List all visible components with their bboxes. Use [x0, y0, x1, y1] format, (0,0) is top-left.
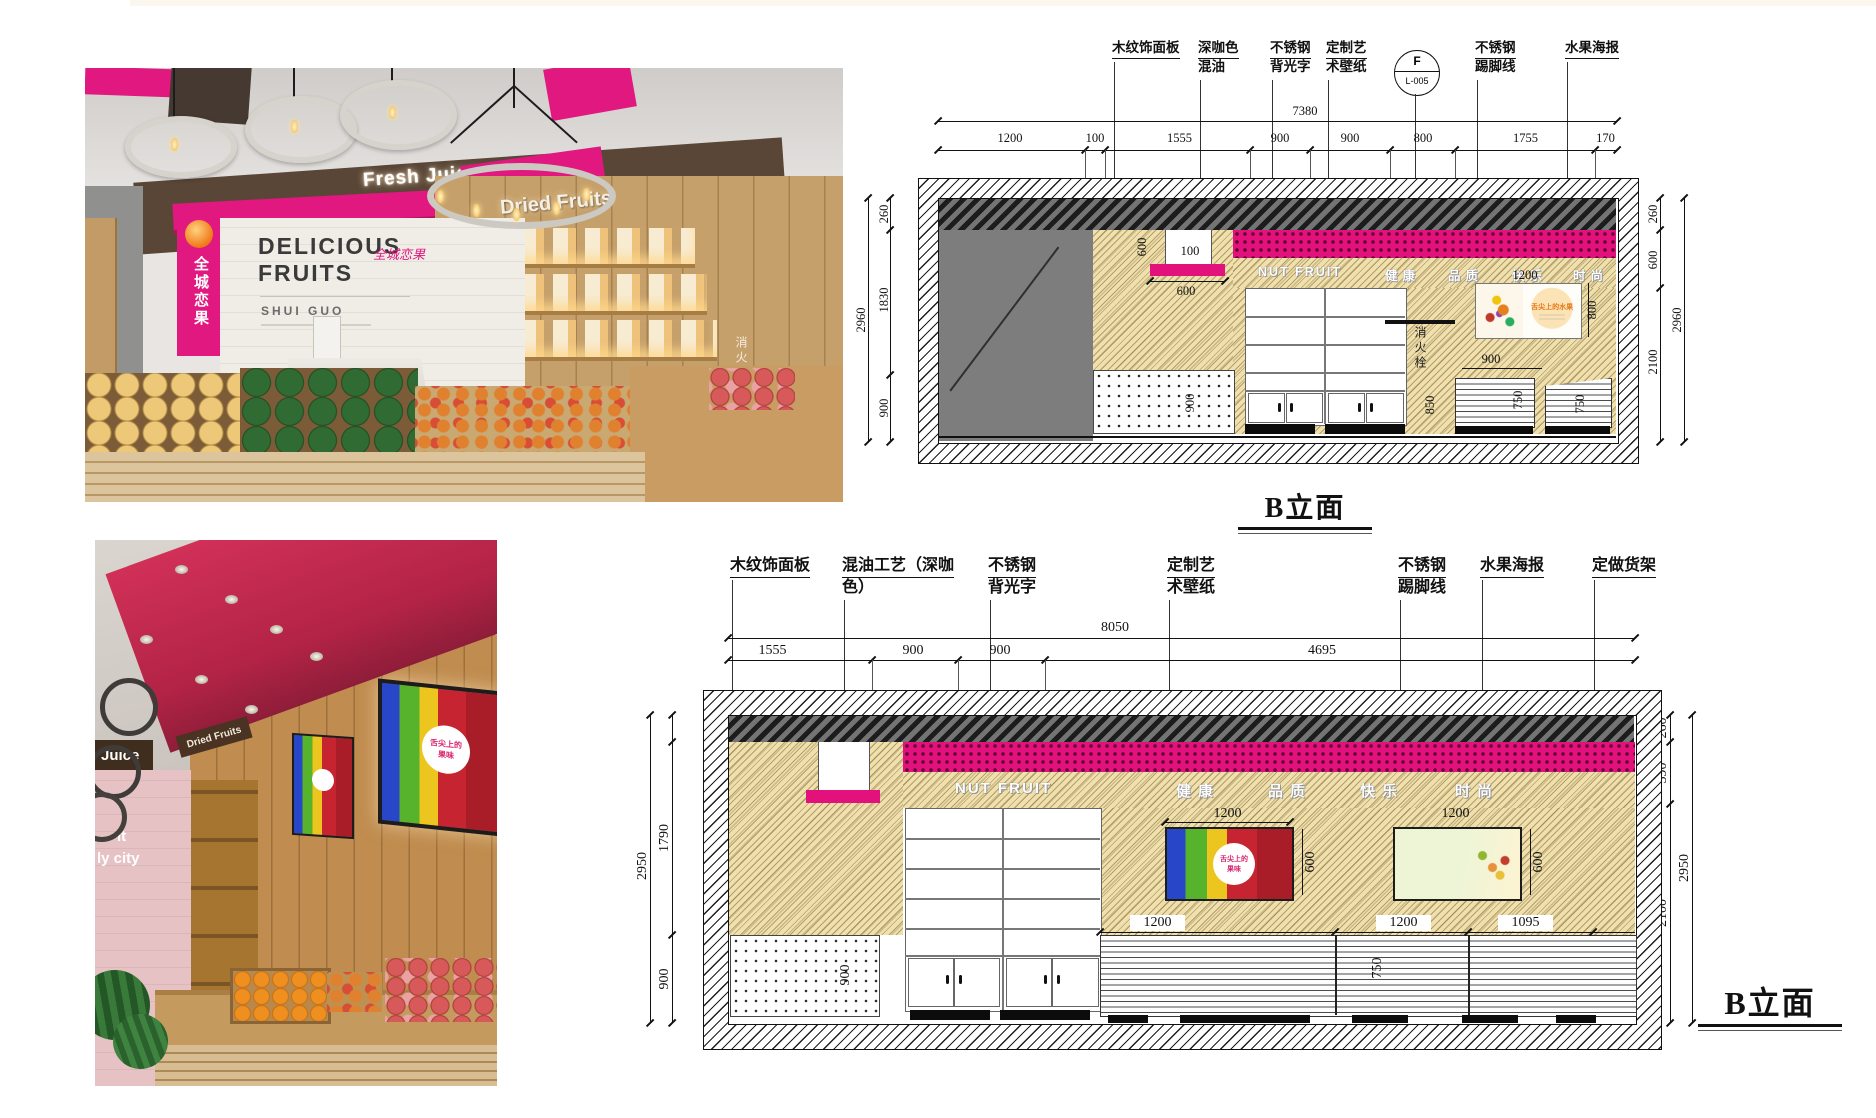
- brand-logo-icon: [185, 220, 213, 248]
- callout-art-wallpaper: 定制艺术壁纸: [1167, 556, 1215, 598]
- orange-crate: [230, 968, 331, 1024]
- shelf-divider: [1002, 808, 1004, 1010]
- fruit-poster-1: 舌尖上的 果味: [1165, 827, 1294, 901]
- recess-niche: [818, 742, 870, 791]
- dim-line: [938, 121, 1617, 122]
- dim: 900: [1183, 373, 1197, 433]
- door-handle: [1044, 975, 1047, 984]
- dim: 900: [1468, 352, 1514, 367]
- callout-label: 踢脚线: [1398, 579, 1446, 596]
- door-handle: [1057, 975, 1060, 984]
- dim: 170: [1583, 131, 1628, 146]
- cabinet-door: [1328, 393, 1365, 423]
- callout-dark-paint: 混油工艺（深咖色）: [842, 556, 954, 598]
- callout-dark-paint: 深咖色混油: [1198, 40, 1239, 76]
- cabinet-door: [1286, 393, 1323, 423]
- slogan-word: 品质: [1268, 780, 1312, 801]
- ext-line: [1085, 150, 1086, 178]
- downlight: [245, 705, 258, 714]
- dim-line: [1150, 281, 1225, 282]
- dim-tick: [1613, 146, 1621, 154]
- counter-front-slats: [155, 1045, 497, 1086]
- dim: 900: [888, 643, 938, 659]
- callout-label: 背光字: [988, 579, 1036, 596]
- slogan-word: 健康: [1385, 265, 1420, 284]
- poster-text-line2: 果味: [438, 749, 454, 762]
- door-handle: [1290, 403, 1293, 412]
- side-wood-rack: [85, 218, 117, 398]
- callout-label: 深咖色: [1198, 40, 1239, 59]
- downlight: [270, 625, 283, 634]
- callout-label: 混油工艺（深咖: [842, 556, 954, 578]
- pillar-brand-text: 全城恋果: [190, 256, 211, 352]
- dim-line: [1684, 198, 1685, 442]
- wood-grain-wall: [1093, 230, 1233, 370]
- callout-label: 不锈钢: [1270, 40, 1311, 59]
- cabinet-door: [954, 958, 1000, 1007]
- render-photo-top: Fresh Juice Dried Fruits 消火栓 DELICIOUS F…: [85, 68, 843, 502]
- base-strip: [1556, 1015, 1596, 1023]
- title-underline-thin: [1698, 1030, 1842, 1031]
- dim: 1200: [1428, 806, 1483, 822]
- dim: 1830: [877, 270, 891, 330]
- store-sign: NUT FRUIT: [955, 780, 1052, 797]
- watermelon: [113, 1014, 168, 1069]
- bulb: [553, 202, 560, 215]
- wall-title-line2: FRUITS: [258, 260, 353, 287]
- callout-label: 定做货架: [1592, 556, 1656, 578]
- hydrant-ledge: [1385, 320, 1455, 324]
- dim: 1095: [1498, 915, 1553, 931]
- ext-line: [1455, 150, 1456, 178]
- base-strip: [1462, 1015, 1518, 1023]
- ext-line: [872, 660, 873, 690]
- dim: 800: [1398, 131, 1448, 146]
- base-strip: [1545, 426, 1610, 434]
- base-strip: [1325, 424, 1405, 434]
- dim-tick: [1688, 1019, 1696, 1027]
- dim: 750: [1573, 374, 1587, 434]
- dim: 900: [877, 378, 891, 438]
- dim-line: [938, 150, 1617, 151]
- dim: 1200: [1200, 806, 1255, 822]
- tag-bottom: L-005: [1395, 72, 1439, 90]
- dim: 1755: [1498, 131, 1553, 146]
- dim-line: [1165, 822, 1290, 823]
- dim: 100: [1170, 244, 1210, 259]
- top-strip: [130, 0, 1876, 6]
- callout-backlit-letters: 不锈钢背光字: [988, 556, 1036, 598]
- callout-label: 水果海报: [1565, 40, 1619, 59]
- dim-line: [728, 660, 1635, 661]
- dim-total: 7380: [1275, 104, 1335, 119]
- door-handle: [946, 975, 949, 984]
- dim: 900: [1255, 131, 1305, 146]
- dim: 1555: [1152, 131, 1207, 146]
- poster-title: 舌尖上的水果: [1531, 302, 1573, 312]
- callout-skirting: 不锈钢踢脚线: [1398, 556, 1446, 598]
- produce-rack: [1100, 935, 1637, 1017]
- dim-total: 8050: [1085, 620, 1145, 636]
- callout-label: 不锈钢: [988, 556, 1036, 578]
- callout-label: 色）: [842, 579, 874, 596]
- poster-body: 舌尖上的水果: [1523, 284, 1581, 338]
- poster-circle: 舌尖上的 果味: [422, 723, 470, 776]
- cabinet-door: [1366, 393, 1404, 423]
- title-underline: [1698, 1024, 1842, 1027]
- dim-line: [1660, 198, 1661, 442]
- dim: 1200: [1500, 268, 1550, 283]
- dim-line: [672, 715, 673, 1023]
- door-handle: [1358, 403, 1361, 412]
- callout-fruit-poster: 水果海报: [1565, 40, 1619, 59]
- callout-label: 踢脚线: [1475, 59, 1516, 74]
- door-handle: [1278, 403, 1281, 412]
- shelf-divider: [1324, 288, 1326, 424]
- dim-tick: [1680, 438, 1688, 446]
- callout-label: 定制艺: [1326, 40, 1367, 59]
- design-sheet: Fresh Juice Dried Fruits 消火栓 DELICIOUS F…: [0, 0, 1876, 1118]
- poster-text: 果味: [1227, 864, 1241, 874]
- base-strip: [1455, 426, 1533, 434]
- dim-line: [728, 638, 1635, 639]
- bulb: [291, 120, 298, 133]
- wood-grain-wall: [729, 742, 903, 935]
- tag-top: F: [1395, 51, 1439, 72]
- callout-wood-panel: 木纹饰面板: [1112, 40, 1180, 59]
- apple-basket: [709, 368, 795, 410]
- dim: 900: [1325, 131, 1375, 146]
- dim: 600: [1646, 230, 1660, 290]
- wheel-pendant-light: [245, 96, 357, 163]
- dim: 1555: [745, 643, 800, 659]
- apple-peach-pile: [385, 958, 497, 1022]
- dim: 2960: [1670, 290, 1684, 350]
- poster-circle: 舌尖上的 果味: [1213, 843, 1255, 885]
- wall-script: 全城恋果: [373, 244, 425, 263]
- fruit-poster: 舌尖上的水果: [1475, 283, 1582, 339]
- wheel-pendant-light: [125, 116, 237, 178]
- callout-custom-rack: 定做货架: [1592, 556, 1656, 578]
- cabinet-door: [1006, 958, 1052, 1007]
- dim: 750: [1370, 938, 1384, 998]
- ext-line: [1045, 660, 1046, 690]
- dim-tick: [864, 438, 872, 446]
- poster-line: [1539, 314, 1565, 316]
- dim: 4695: [1292, 643, 1352, 659]
- dim: 600: [1135, 217, 1149, 277]
- dim-tick: [1656, 438, 1664, 446]
- wall-text-2: ly city: [97, 850, 140, 867]
- dim-tick: [1666, 1019, 1674, 1027]
- dim: 800: [1585, 280, 1599, 340]
- dim-line: [1692, 715, 1693, 1023]
- callout-label: 木纹饰面板: [1112, 40, 1180, 59]
- render-photo-bottom: 舌尖上的 果味 Dried Fruits Juice it ly city: [95, 540, 497, 1086]
- dim-line: [650, 715, 651, 1023]
- mixed-fruit-crate: [327, 972, 382, 1012]
- bulb: [437, 190, 444, 203]
- callout-skirting: 不锈钢踢脚线: [1475, 40, 1516, 76]
- bulb: [389, 106, 396, 119]
- dim: 850: [1423, 375, 1437, 435]
- rack-divider: [1468, 935, 1470, 1015]
- dim: 1200: [1130, 915, 1185, 931]
- downlight: [310, 652, 323, 661]
- ext-line: [1250, 150, 1251, 178]
- display-table-front: [85, 452, 645, 502]
- drawing-title: B立面: [1240, 486, 1370, 526]
- floor-line: [939, 436, 1616, 438]
- dim-tick: [1631, 656, 1639, 664]
- callout-fruit-poster: 水果海报: [1480, 556, 1544, 578]
- base-strip: [1245, 424, 1315, 434]
- callout-label: 术壁纸: [1326, 59, 1367, 74]
- bulb: [583, 188, 590, 201]
- dim: 750: [1511, 370, 1525, 430]
- fruit-poster-2: [1393, 827, 1522, 901]
- dim: 900: [975, 643, 1025, 659]
- downlight: [140, 635, 153, 644]
- dim: 600: [1163, 284, 1209, 299]
- door-handle: [1370, 403, 1373, 412]
- downlight: [195, 675, 208, 684]
- store-sign: NUT FRUIT: [1258, 265, 1342, 279]
- base-strip: [1180, 1015, 1310, 1023]
- dim: 2950: [635, 836, 649, 896]
- dim: 900: [838, 945, 852, 1005]
- dim: 600: [1303, 832, 1317, 892]
- pink-sign-plate: [1150, 264, 1225, 276]
- title-underline-thin: [1238, 533, 1372, 534]
- pink-pillar-sign: 全城恋果: [177, 210, 220, 356]
- base-strip: [910, 1010, 990, 1020]
- rack-divider: [1335, 935, 1337, 1015]
- ceiling-band: [939, 199, 1616, 230]
- bulb: [513, 208, 520, 221]
- callout-art-wallpaper: 定制艺术壁纸: [1326, 40, 1367, 76]
- entry-gray-panel: [939, 230, 1093, 441]
- bulb: [473, 204, 480, 217]
- wheel-pendant-light: [340, 80, 457, 150]
- dim: 600: [1531, 832, 1545, 892]
- drawing-tag: F L-005: [1394, 50, 1440, 96]
- dim: 1200: [985, 131, 1035, 146]
- dim: 2960: [854, 290, 868, 350]
- callout-label: 水果海报: [1480, 556, 1544, 578]
- base-strip: [1352, 1015, 1408, 1023]
- dim: 2950: [1677, 838, 1691, 898]
- pegboard: [730, 935, 880, 1017]
- slogan-word: 品质: [1448, 265, 1483, 284]
- drawing-title: B立面: [1700, 978, 1840, 1024]
- callout-label: 术壁纸: [1167, 579, 1215, 596]
- ceiling-band: [729, 716, 1634, 742]
- title-underline: [1238, 527, 1372, 530]
- poster-line: [1539, 318, 1565, 320]
- base-strip: [1000, 1010, 1090, 1020]
- dim: 1790: [657, 808, 671, 868]
- poster-fruit-art: [1476, 284, 1523, 338]
- dim-tick: [1613, 117, 1621, 125]
- pegboard: [1093, 370, 1235, 434]
- dim-line: [868, 198, 869, 442]
- poster-text: 舌尖上的: [1220, 854, 1248, 864]
- fruit-poster-large: 舌尖上的 果味: [378, 678, 497, 836]
- cabinet-door: [1248, 393, 1285, 423]
- downlight: [175, 565, 188, 574]
- callout-label: 混油: [1198, 59, 1225, 74]
- callout-label: 背光字: [1270, 59, 1311, 74]
- dim-tick: [646, 1019, 654, 1027]
- base-strip: [1108, 1015, 1148, 1023]
- dim-tick: [668, 1019, 676, 1027]
- pos-terminal: [313, 316, 341, 360]
- downlight: [225, 595, 238, 604]
- dim-line: [1670, 715, 1671, 1023]
- ext-line: [1595, 150, 1596, 178]
- dim: 1200: [1376, 915, 1431, 931]
- dim: 900: [657, 949, 671, 1009]
- cabinet-door: [1052, 958, 1099, 1007]
- slogan-word: 快乐: [1360, 780, 1404, 801]
- cabinet-door: [908, 958, 954, 1007]
- callout-wood-panel: 木纹饰面板: [730, 556, 810, 578]
- pendant-stem: [173, 68, 175, 120]
- dim-tick: [1631, 634, 1639, 642]
- fruit-poster-small: [292, 733, 354, 839]
- callout-backlit-letters: 不锈钢背光字: [1270, 40, 1311, 76]
- pink-wallpaper-band: [1233, 230, 1616, 258]
- dim: 100: [1075, 131, 1115, 146]
- pink-wallpaper-band: [903, 742, 1635, 772]
- callout-label: 木纹饰面板: [730, 556, 810, 578]
- dim: 260: [877, 184, 891, 244]
- dim-line: [1462, 368, 1542, 369]
- callout-label: 定制艺: [1167, 556, 1215, 578]
- bulb: [171, 138, 178, 151]
- callout-label: 不锈钢: [1475, 40, 1516, 59]
- ext-line: [958, 660, 959, 690]
- pink-sign-plate: [806, 790, 880, 803]
- wall-divider: [260, 296, 410, 297]
- ext-line: [1310, 150, 1311, 178]
- callout-label: 不锈钢: [1398, 556, 1446, 578]
- ext-line: [1390, 150, 1391, 178]
- dim: 2100: [1646, 332, 1660, 392]
- dim-line: [1100, 932, 1635, 933]
- door-handle: [959, 975, 962, 984]
- ext-line: [1105, 150, 1106, 178]
- dim-tick: [886, 438, 894, 446]
- wheel-pendant-light: [100, 678, 158, 736]
- slogan-word: 时尚: [1455, 780, 1499, 801]
- poster-circle: [312, 768, 334, 792]
- slogan-word: 健康: [1176, 780, 1220, 801]
